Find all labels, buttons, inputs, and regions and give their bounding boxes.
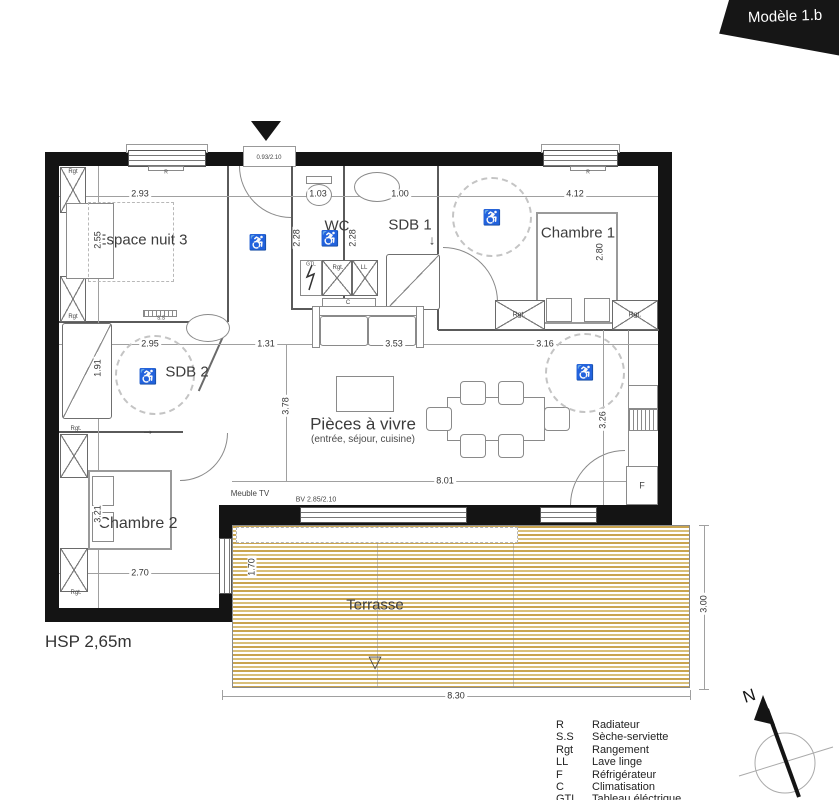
kitchen-appliance [628, 385, 658, 409]
legend-label: Radiateur [592, 720, 640, 731]
legend-label: Climatisation [592, 782, 655, 793]
legend-label: Sèche-serviette [592, 732, 668, 743]
pillow [92, 476, 114, 506]
kitchen-appliance-vent [628, 409, 658, 431]
chair [460, 434, 486, 458]
annotation-label: 0.93/2.10 [256, 155, 281, 161]
legend-abbr: LL [556, 757, 592, 768]
sofa-arm [416, 306, 424, 348]
window-living-south [540, 507, 597, 523]
legend-abbr: R [556, 720, 592, 731]
door-arc-chambre-2 [180, 433, 228, 481]
annotation-label: F [639, 482, 645, 491]
dimension-label: 2.93 [129, 190, 151, 199]
wheelchair-icon: ♿ [321, 232, 340, 247]
dimension-label: 2.95 [139, 340, 161, 349]
dimension-label: 3.53 [383, 340, 405, 349]
annotation-label: → [142, 424, 155, 437]
model-banner: Modèle 1.b [698, 0, 839, 84]
shower-sdb2 [62, 323, 112, 419]
chair [544, 407, 570, 431]
room-label-chambre-1: Chambre 1 [541, 226, 615, 241]
door-arc-terrace [570, 450, 625, 505]
wheelchair-icon: ♿ [483, 211, 502, 226]
dimension-label: 3.21 [94, 503, 103, 525]
legend-row: RRadiateur [556, 720, 681, 731]
legend-row: GTLTableau éléctrique [556, 794, 681, 800]
annotation-label: R [164, 171, 168, 176]
north-needle-icon [754, 695, 775, 725]
wheelchair-icon: ♿ [139, 370, 158, 385]
legend-abbr: F [556, 770, 592, 781]
wall-espace-nuit-right [227, 166, 229, 322]
toilet-tank [306, 176, 332, 184]
dimension-label: 1.00 [389, 190, 411, 199]
legend-label: Rangement [592, 745, 649, 756]
annotation-label: R [586, 171, 590, 176]
legend-label: Lave linge [592, 757, 642, 768]
legend-row: FRéfrigérateur [556, 770, 681, 781]
dimension-label: 2.70 [129, 569, 151, 578]
bed-drawer [546, 298, 572, 322]
legend-row: LLLave linge [556, 757, 681, 768]
dim-tick [222, 690, 223, 700]
legend-label: Réfrigérateur [592, 770, 656, 781]
annotation-label: Rgt. [332, 265, 343, 271]
legend-abbr: GTL [556, 794, 592, 800]
bay-window [300, 507, 467, 523]
sink-icon [186, 314, 230, 342]
dimension-label: 1.31 [255, 340, 277, 349]
sofa-back [318, 306, 418, 316]
annotation-label: ↓ [429, 234, 436, 247]
annotation-label: C [346, 300, 350, 306]
sofa-cushion [320, 316, 368, 346]
ceiling-height-note: HSP 2,65m [45, 632, 132, 652]
dim-tick [690, 690, 691, 700]
annotation-label: ▽ [368, 654, 381, 671]
annotation-label: GTL [306, 263, 316, 268]
legend-abbr: S.S [556, 732, 592, 743]
legend-abbr: C [556, 782, 592, 793]
sofa-arm [312, 306, 320, 348]
annotation-label: Rgt [68, 314, 77, 320]
dimension-label: 3.00 [700, 593, 709, 615]
chair [426, 407, 452, 431]
annotation-label: Rgt. [70, 426, 81, 432]
dimension-label: 8.01 [434, 477, 456, 486]
coffee-table [336, 376, 394, 412]
door-arc-entry [239, 166, 291, 218]
dim-tick [699, 525, 709, 526]
storage-box [60, 434, 88, 478]
legend-abbr: Rgt [556, 745, 592, 756]
annotation-label: BV 2.85/2.10 [296, 497, 336, 504]
model-banner-label: Modèle 1.b [748, 7, 823, 27]
room-label-sdb-1: SDB 1 [388, 218, 431, 233]
dimension-label: 8.30 [445, 692, 467, 701]
room-label-terrasse: Terrasse [346, 598, 404, 613]
north-compass: N [727, 683, 839, 800]
terrace-deck [232, 525, 690, 688]
wall-left [45, 152, 59, 622]
dimension-label: 2.55 [94, 229, 103, 251]
annotation-label: Rgt. [513, 312, 526, 319]
annotation-label: Rgt. [629, 312, 642, 319]
annotation-label: S.S [157, 317, 165, 322]
dimension-label: 2.28 [293, 227, 302, 249]
annotation-label: Meuble TV [231, 490, 270, 498]
room-label-chambre-2: Chambre 2 [98, 516, 177, 532]
room-label-pieces-a-vivre: Pièces à vivre [310, 416, 416, 433]
wall-right [658, 152, 672, 525]
dimension-label: 1.91 [94, 357, 103, 379]
room-label-espace-nuit-3: Espace nuit 3 [97, 233, 188, 248]
legend: RRadiateurS.SSèche-servietteRgtRangement… [556, 720, 681, 800]
room-label-sdb-2: SDB 2 [165, 365, 208, 380]
annotation-label: Rgt [68, 169, 77, 175]
window-chambre-1 [543, 150, 618, 167]
dimension-label: 3.16 [534, 340, 556, 349]
deck-joint [513, 525, 514, 688]
legend-label: Tableau éléctrique [592, 794, 681, 800]
window-chambre-2 [219, 538, 232, 594]
dimension-label: 3.78 [282, 395, 291, 417]
legend-row: CClimatisation [556, 782, 681, 793]
dimension-label: 1.03 [307, 190, 329, 199]
wall-bottom-wing [45, 608, 232, 622]
wheelchair-icon: ♿ [249, 236, 268, 251]
chair [498, 381, 524, 405]
bed-drawer [584, 298, 610, 322]
shower-sdb1 [386, 254, 440, 310]
dimension-label: 2.28 [349, 227, 358, 249]
storage-box [60, 548, 88, 592]
terrace-threshold [236, 527, 518, 543]
window-espace-nuit [128, 150, 206, 167]
chair [460, 381, 486, 405]
dimension-label: 1.70 [248, 556, 257, 578]
dimension-label: 2.80 [596, 241, 605, 263]
annotation-label: Rgt. [70, 590, 81, 596]
floor-plan-canvas: Modèle 1.b [0, 0, 839, 800]
wall-sdb1-right [437, 166, 439, 254]
dimension-label: 4.12 [564, 190, 586, 199]
legend-row: RgtRangement [556, 745, 681, 756]
annotation-label: LL [361, 265, 368, 271]
room-sublabel-pieces-a-vivre: (entrée, séjour, cuisine) [311, 435, 415, 445]
dimension-label: 3.26 [599, 409, 608, 431]
entrance-arrow-icon [251, 121, 281, 141]
wheelchair-icon: ♿ [576, 366, 595, 381]
north-label: N [740, 685, 758, 707]
legend-row: S.SSèche-serviette [556, 732, 681, 743]
dim-tick [699, 689, 709, 690]
chair [498, 434, 524, 458]
